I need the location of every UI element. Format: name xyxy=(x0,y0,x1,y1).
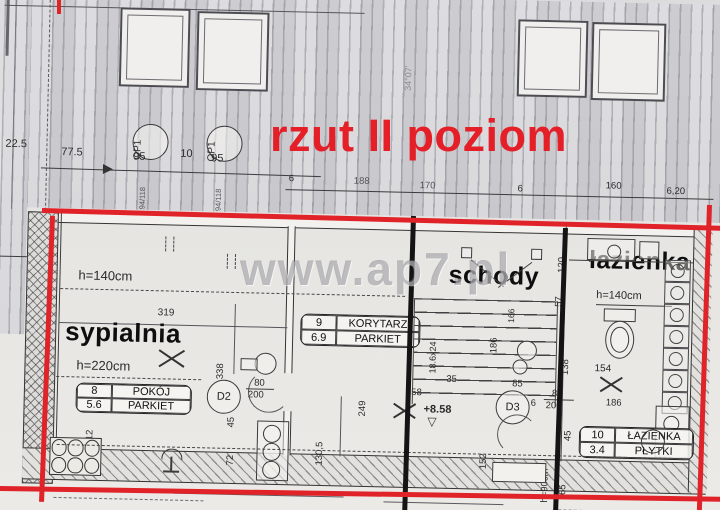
bathroom-dim-154: 154 xyxy=(594,364,611,374)
room-label-bedroom: sypialnia xyxy=(65,318,181,347)
room-area: 6.9 xyxy=(301,330,336,346)
cross-mark xyxy=(156,346,186,369)
ceiling-dash xyxy=(165,236,166,251)
stair-post xyxy=(531,249,542,260)
dim-arrowhead xyxy=(103,164,113,174)
room-table-corridor: 9 KORYTARZ 6.9 PARKIET xyxy=(300,313,421,348)
roof-dim: 77.5 xyxy=(61,147,83,158)
elevation-triangle: ▽ xyxy=(427,415,437,427)
red-mark-top-left xyxy=(57,0,61,14)
bedroom-depth-dim: 338 xyxy=(216,363,226,379)
room-area: 5.6 xyxy=(76,397,111,412)
roof-dim: 95 xyxy=(211,153,223,164)
door-d2-width: 80 xyxy=(254,378,265,388)
ceiling-dash xyxy=(235,254,236,269)
counter-fixture xyxy=(639,241,659,259)
bathroom-height-top: h=140cm xyxy=(596,290,642,302)
bedroom-width-dim: 319 xyxy=(158,308,175,318)
bedroom-height-lower: h=220cm xyxy=(76,358,130,372)
corridor-dim-130-5: 130,5 xyxy=(315,442,325,466)
roof-dim: 188 xyxy=(354,177,370,187)
radiator-symbol xyxy=(49,437,102,476)
cross-mark xyxy=(598,374,624,393)
room-floor: PARKIET xyxy=(111,398,190,414)
watermark: www.ap7.pl xyxy=(240,242,511,296)
roof-dim: 170 xyxy=(420,181,436,191)
door-marker-d2: D2 xyxy=(206,379,241,414)
room-number: 9 xyxy=(301,315,336,331)
roof-dim: 160 xyxy=(606,181,622,191)
stair-tread-size: 18.6x24 xyxy=(428,341,438,373)
plan-title: rzut II poziom xyxy=(270,110,567,162)
skylight-window xyxy=(517,19,589,98)
stairs-dim-166: 166 xyxy=(507,308,516,322)
room-number: 8 xyxy=(77,383,112,398)
skylight-window xyxy=(196,11,270,92)
skylight-size-note: 94/118 xyxy=(215,189,223,212)
door-d2-height: 200 xyxy=(248,390,264,400)
roof-dim: 6 xyxy=(517,184,523,194)
scanned-floor-plan: OP1 OP1 34°07' 22.5 77.5 95 10 95 6 188 … xyxy=(0,0,720,510)
skylight-window xyxy=(591,22,667,102)
roof-dim: 6 xyxy=(289,174,295,184)
bedroom-dim-45: 45 xyxy=(227,417,237,428)
roof-angle-note: 34°07' xyxy=(404,65,414,91)
door-d3-gap: 6 xyxy=(531,399,537,409)
bathroom-dim-152: 152 xyxy=(479,453,489,469)
bedroom-depth-dim-line xyxy=(233,304,236,374)
bedroom-dim-72: 72 xyxy=(226,455,236,466)
stairs-dim-186: 186 xyxy=(489,337,499,353)
room-number: 10 xyxy=(580,427,615,443)
roof-dim: 6,20 xyxy=(666,187,685,197)
corridor-dim-line xyxy=(339,396,342,456)
skylight-window xyxy=(119,7,191,88)
corridor-dim-249: 249 xyxy=(358,400,368,416)
bottom-wall-window xyxy=(492,462,546,483)
duct-column xyxy=(662,260,691,415)
roof-dim: 10 xyxy=(180,149,192,160)
corridor-fixture xyxy=(240,358,257,370)
stairs-dim-85: 85 xyxy=(512,379,523,389)
door-marker-label: D2 xyxy=(217,391,231,403)
door-marker-label: D3 xyxy=(505,401,519,413)
bathroom-dim-45: 45 xyxy=(563,430,573,441)
room-table-bedroom: 8 POKÓJ 5.6 PARKIET xyxy=(75,382,192,415)
bedroom-height-upper: h=140cm xyxy=(78,268,132,282)
lower-floor-fragment-dash xyxy=(53,497,203,501)
bedroom-dashed-line xyxy=(56,376,201,380)
roof-dim: 22.5 xyxy=(5,139,27,150)
skylight-size-note: 94/118 xyxy=(139,187,147,210)
roof-dim: 95 xyxy=(133,152,145,163)
ceiling-dash xyxy=(227,254,228,269)
door-swing-arc-d3 xyxy=(497,414,538,455)
bathroom-knee-line xyxy=(596,304,672,307)
bathroom-dim-186: 186 xyxy=(606,398,622,408)
ceiling-dash xyxy=(173,237,174,252)
